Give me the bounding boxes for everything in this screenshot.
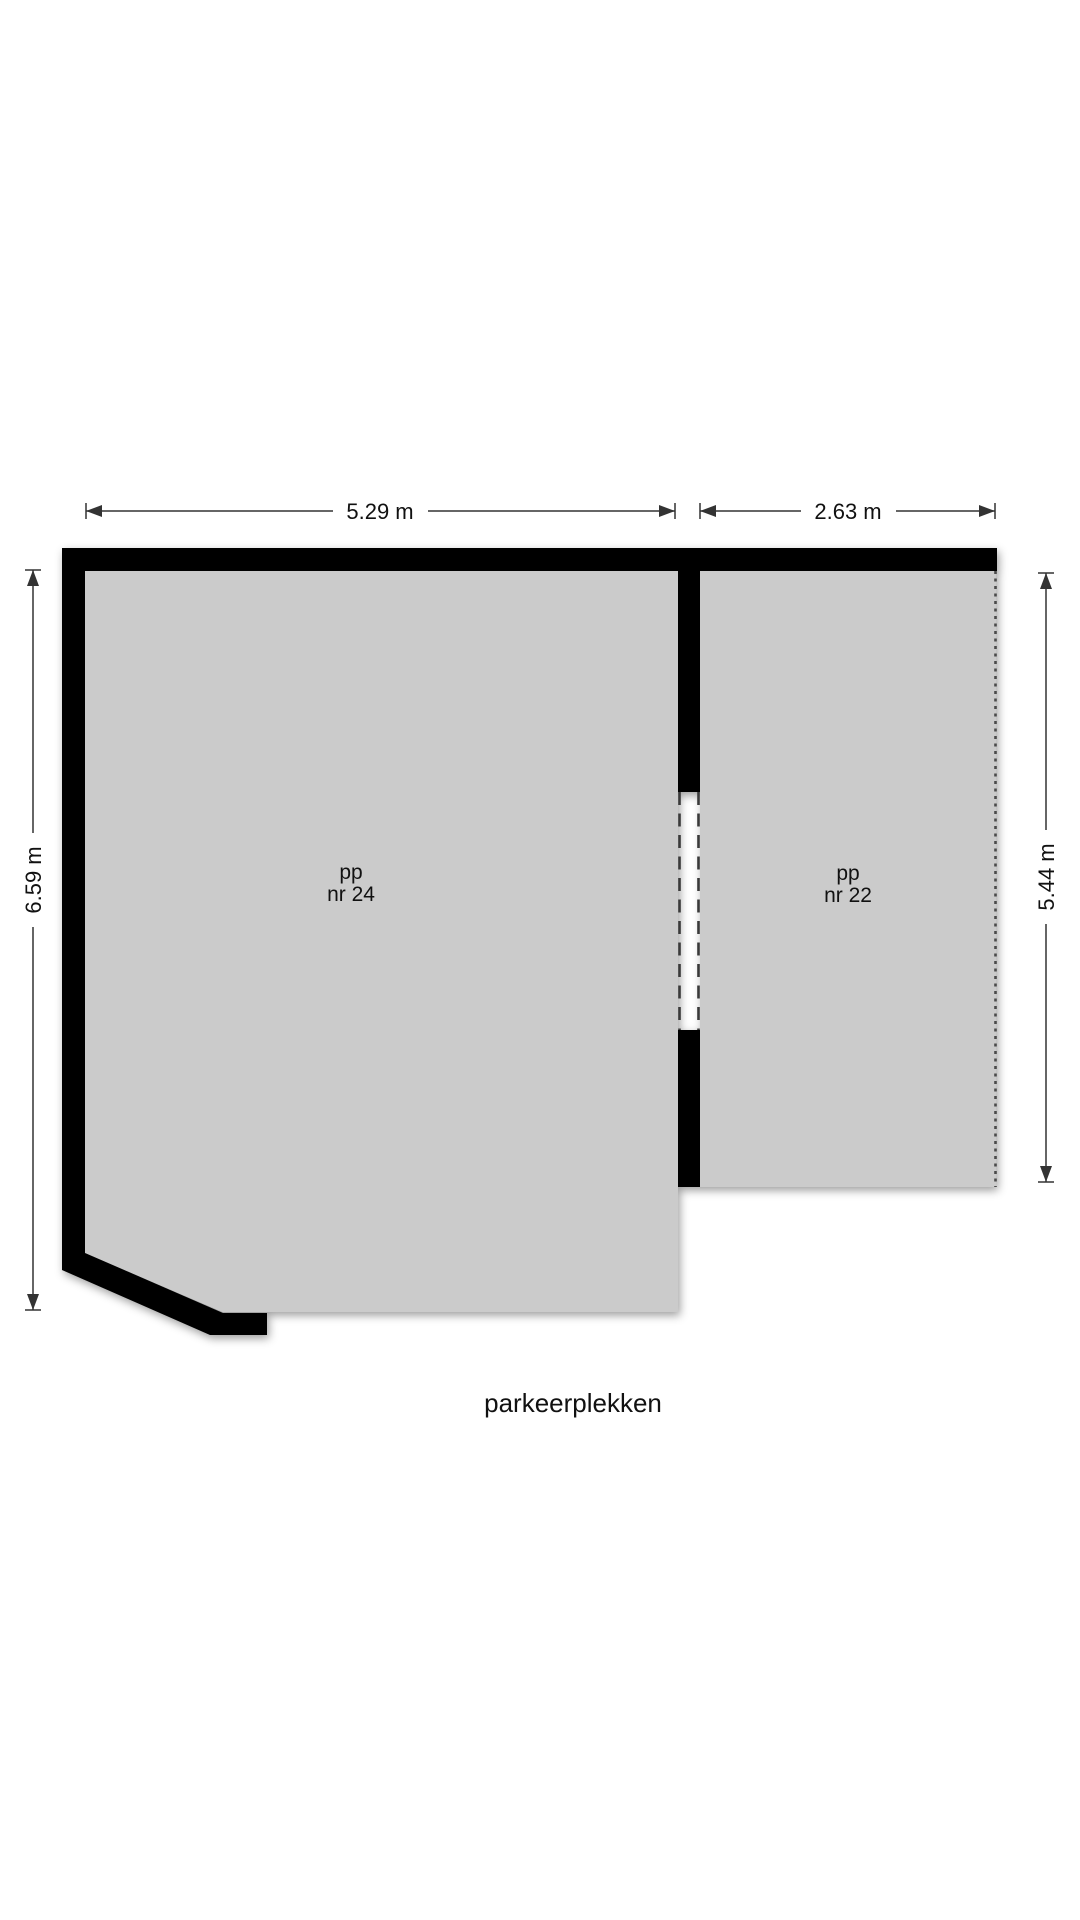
dimension-label-top-right: 2.63 m	[814, 499, 881, 524]
plan-structure	[62, 548, 997, 1335]
arrow-up-icon	[27, 570, 39, 586]
dimension-label-top-left: 5.29 m	[346, 499, 413, 524]
arrow-down-icon	[1040, 1166, 1052, 1182]
arrow-up-icon	[1040, 573, 1052, 589]
wall-left	[62, 548, 85, 1270]
wall-top	[62, 548, 997, 571]
wall-bottom-stub	[210, 1313, 267, 1335]
arrow-left-icon	[700, 505, 716, 517]
room-pp-22-label-top: pp	[836, 862, 859, 885]
arrow-right-icon	[979, 505, 995, 517]
room-pp-24-floor	[85, 571, 678, 1312]
arrow-right-icon	[659, 505, 675, 517]
plan-title: parkeerplekken	[484, 1388, 662, 1418]
floor-plan: 5.29 m 2.63 m 6.59 m	[0, 0, 1080, 1920]
divider-wall-upper	[678, 571, 700, 792]
room-pp-24-label-bottom: nr 24	[327, 883, 375, 906]
divider-wall-lower	[678, 1030, 700, 1187]
arrow-left-icon	[86, 505, 102, 517]
room-pp-22-label-bottom: nr 22	[824, 884, 872, 907]
dimension-label-right: 5.44 m	[1034, 843, 1059, 910]
dimension-label-left: 6.59 m	[21, 846, 46, 913]
room-pp-24-label-top: pp	[339, 861, 362, 884]
dimension-left	[25, 570, 41, 1310]
divider-opening	[680, 792, 699, 1030]
floor-plan-page: 5.29 m 2.63 m 6.59 m	[0, 0, 1080, 1920]
arrow-down-icon	[27, 1294, 39, 1310]
